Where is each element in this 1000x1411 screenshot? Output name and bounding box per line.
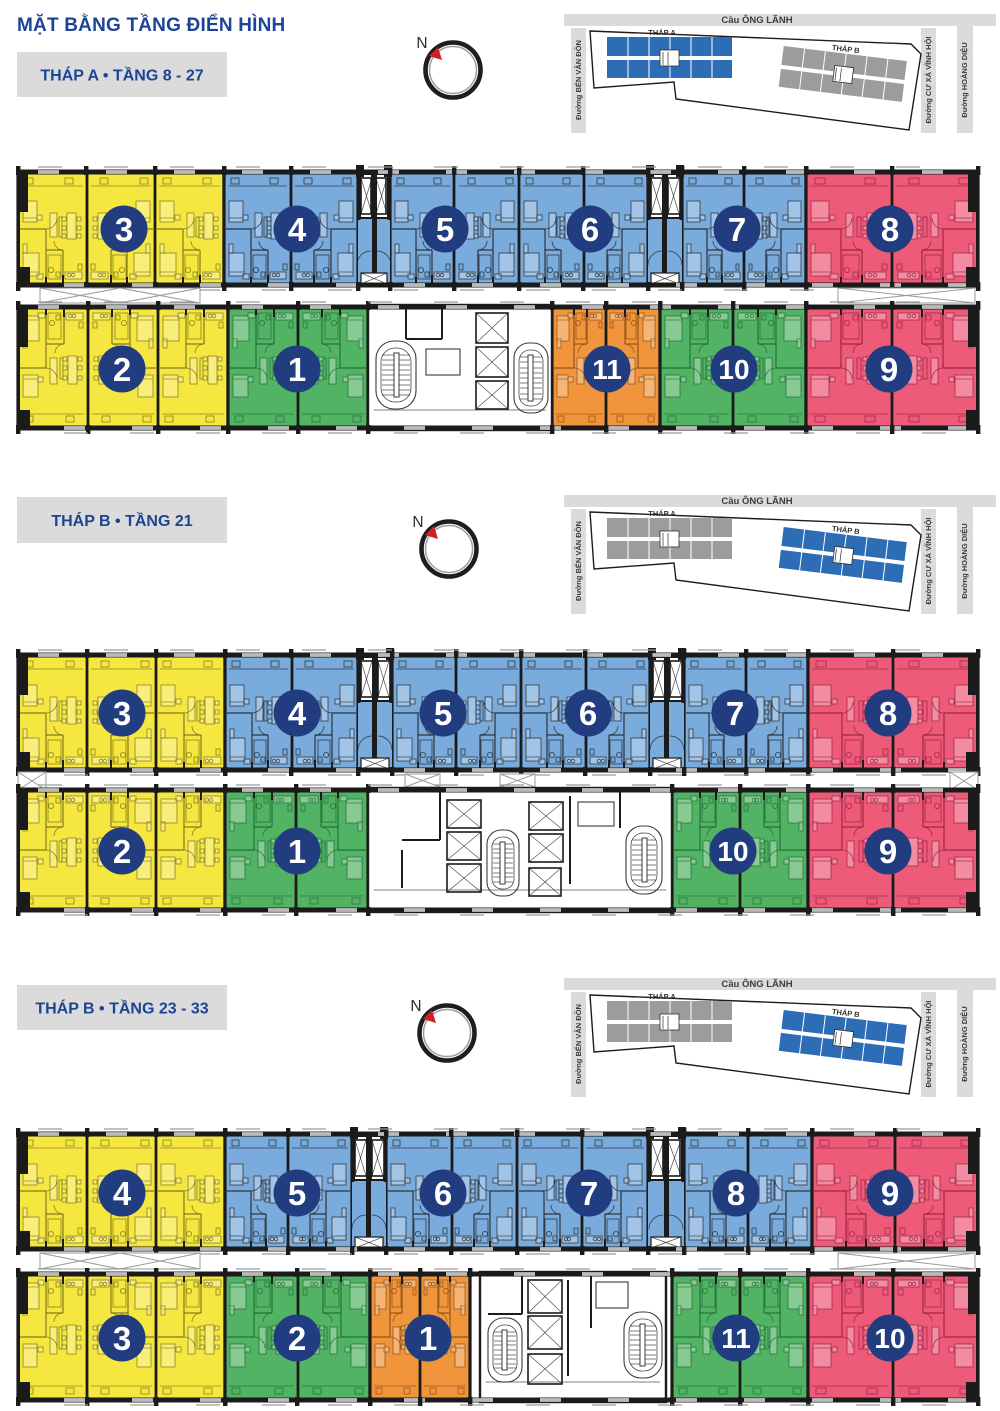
svg-text:N: N (412, 514, 423, 531)
svg-text:THÁP B • TẦNG 23 - 33: THÁP B • TẦNG 23 - 33 (35, 999, 208, 1018)
svg-text:6: 6 (581, 211, 599, 248)
svg-text:2: 2 (288, 1320, 306, 1357)
svg-text:9: 9 (879, 833, 897, 870)
svg-text:3: 3 (113, 695, 131, 732)
svg-text:Đường CƯ XÁ VĨNH HỘI: Đường CƯ XÁ VĨNH HỘI (924, 37, 933, 124)
svg-text:7: 7 (726, 695, 744, 732)
svg-text:7: 7 (580, 1175, 598, 1212)
svg-text:3: 3 (115, 211, 133, 248)
svg-text:5: 5 (288, 1175, 306, 1212)
svg-text:THÁP B • TẦNG 21: THÁP B • TẦNG 21 (51, 511, 192, 530)
svg-text:3: 3 (113, 1320, 131, 1357)
svg-text:THÁP A • TẦNG 8 - 27: THÁP A • TẦNG 8 - 27 (40, 66, 203, 85)
svg-text:Đường HOÀNG DIỆU: Đường HOÀNG DIỆU (960, 42, 969, 117)
svg-text:10: 10 (874, 1323, 905, 1354)
svg-text:11: 11 (721, 1323, 751, 1354)
svg-text:9: 9 (881, 1175, 899, 1212)
svg-text:THÁP A: THÁP A (648, 509, 676, 518)
svg-text:4: 4 (288, 211, 307, 248)
svg-text:Đường BẾN VÂN ĐỒN: Đường BẾN VÂN ĐỒN (573, 1004, 583, 1084)
svg-text:Đường CƯ XÁ VĨNH HỘI: Đường CƯ XÁ VĨNH HỘI (924, 518, 933, 605)
svg-text:10: 10 (717, 836, 748, 867)
svg-text:4: 4 (288, 695, 307, 732)
svg-text:MẶT BẰNG TẦNG ĐIỂN HÌNH: MẶT BẰNG TẦNG ĐIỂN HÌNH (17, 14, 285, 36)
svg-text:Cầu ÔNG LÃNH: Cầu ÔNG LÃNH (721, 14, 792, 26)
svg-text:Đường BẾN VÂN ĐỒN: Đường BẾN VÂN ĐỒN (573, 521, 583, 601)
svg-text:THÁP A: THÁP A (648, 28, 676, 37)
svg-text:2: 2 (113, 833, 131, 870)
svg-text:1: 1 (419, 1320, 437, 1357)
svg-text:N: N (416, 35, 427, 52)
svg-text:Đường CƯ XÁ VĨNH HỘI: Đường CƯ XÁ VĨNH HỘI (924, 1001, 933, 1088)
svg-text:6: 6 (579, 695, 597, 732)
svg-text:THÁP A: THÁP A (648, 992, 676, 1001)
svg-text:1: 1 (288, 833, 306, 870)
svg-text:Cầu ÔNG LÃNH: Cầu ÔNG LÃNH (721, 978, 792, 990)
svg-text:1: 1 (288, 351, 306, 388)
svg-text:Đường BẾN VÂN ĐỒN: Đường BẾN VÂN ĐỒN (573, 40, 583, 120)
svg-text:10: 10 (718, 354, 749, 385)
svg-text:N: N (410, 998, 421, 1015)
svg-text:9: 9 (880, 351, 898, 388)
svg-text:4: 4 (113, 1175, 132, 1212)
svg-text:8: 8 (727, 1175, 745, 1212)
svg-text:Đường HOÀNG DIỆU: Đường HOÀNG DIỆU (960, 523, 969, 598)
svg-text:11: 11 (592, 354, 622, 385)
svg-text:Cầu ÔNG LÃNH: Cầu ÔNG LÃNH (721, 495, 792, 507)
svg-text:8: 8 (879, 695, 897, 732)
svg-text:8: 8 (881, 211, 899, 248)
svg-text:6: 6 (434, 1175, 452, 1212)
svg-text:5: 5 (434, 695, 452, 732)
svg-text:5: 5 (436, 211, 454, 248)
svg-text:7: 7 (728, 211, 746, 248)
svg-text:Đường HOÀNG DIỆU: Đường HOÀNG DIỆU (960, 1006, 969, 1081)
svg-text:2: 2 (113, 351, 131, 388)
